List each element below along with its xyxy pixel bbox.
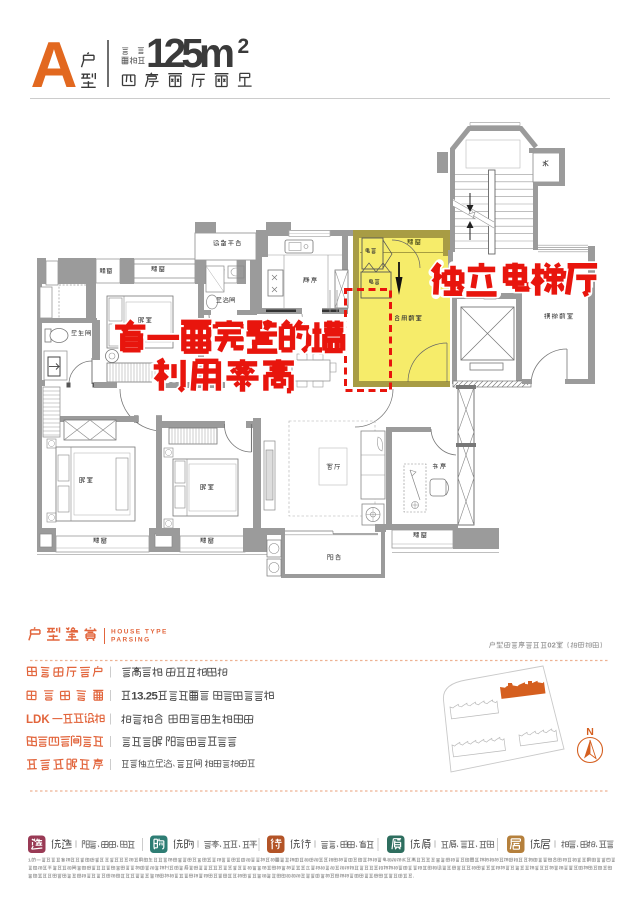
svg-text:N: N <box>586 726 594 738</box>
svg-text:LDK: LDK <box>26 714 50 726</box>
svg-text:125m: 125m <box>146 30 235 76</box>
svg-text:13.25: 13.25 <box>131 690 158 702</box>
svg-text:2: 2 <box>238 35 250 58</box>
svg-text:02: 02 <box>547 641 556 650</box>
svg-text:A: A <box>31 28 78 101</box>
svg-text:.: . <box>413 874 415 879</box>
svg-text:1.: 1. <box>28 857 32 863</box>
svg-text:PARSING: PARSING <box>111 637 151 644</box>
svg-text:HOUSE TYPE: HOUSE TYPE <box>111 629 168 636</box>
